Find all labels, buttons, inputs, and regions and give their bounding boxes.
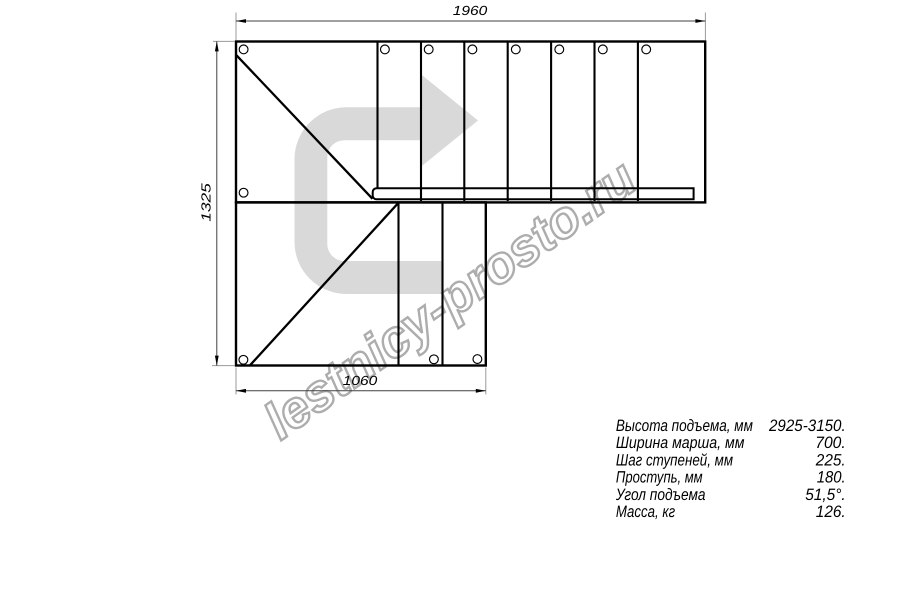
svg-text:1325: 1325	[198, 182, 213, 221]
svg-text:2925-3150.: 2925-3150.	[768, 417, 846, 435]
svg-text:225.: 225.	[815, 451, 846, 469]
svg-text:Масса, кг: Масса, кг	[616, 503, 675, 521]
svg-text:1060: 1060	[343, 373, 378, 388]
svg-text:1960: 1960	[453, 3, 488, 18]
svg-text:Ширина марша, мм: Ширина марша, мм	[616, 434, 745, 452]
svg-text:180.: 180.	[817, 469, 846, 487]
svg-text:126.: 126.	[816, 503, 846, 521]
svg-text:Проступь, мм: Проступь, мм	[616, 469, 703, 487]
svg-text:Шаг ступеней, мм: Шаг ступеней, мм	[616, 451, 733, 469]
svg-text:Высота подъема, мм: Высота подъема, мм	[616, 417, 753, 435]
svg-text:51,5°.: 51,5°.	[805, 486, 846, 504]
svg-text:Угол подъема: Угол подъема	[615, 486, 705, 504]
svg-text:700.: 700.	[815, 434, 845, 452]
